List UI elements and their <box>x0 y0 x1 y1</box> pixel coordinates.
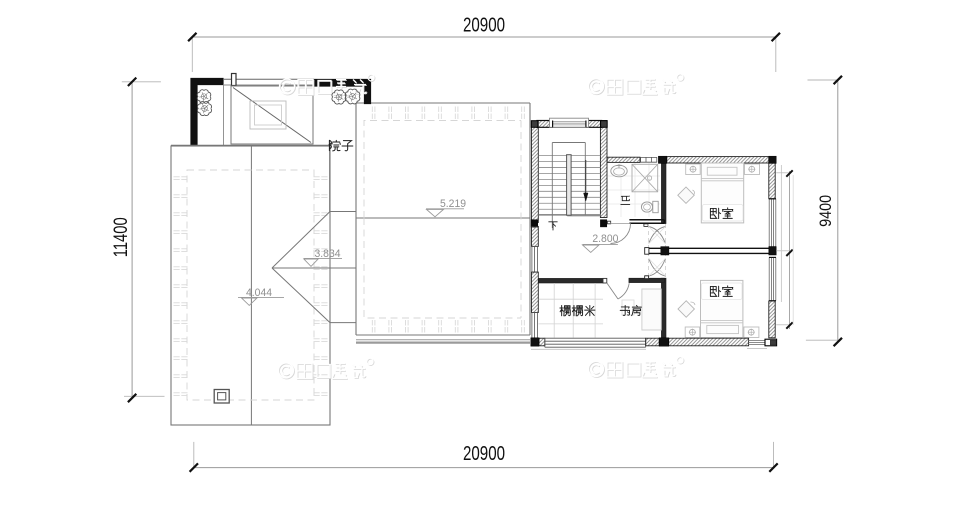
svg-text:2.800: 2.800 <box>592 233 618 245</box>
svg-text:9400: 9400 <box>816 195 835 227</box>
svg-text:20900: 20900 <box>463 443 505 465</box>
svg-text:20900: 20900 <box>463 15 505 37</box>
svg-text:11400: 11400 <box>111 217 132 257</box>
